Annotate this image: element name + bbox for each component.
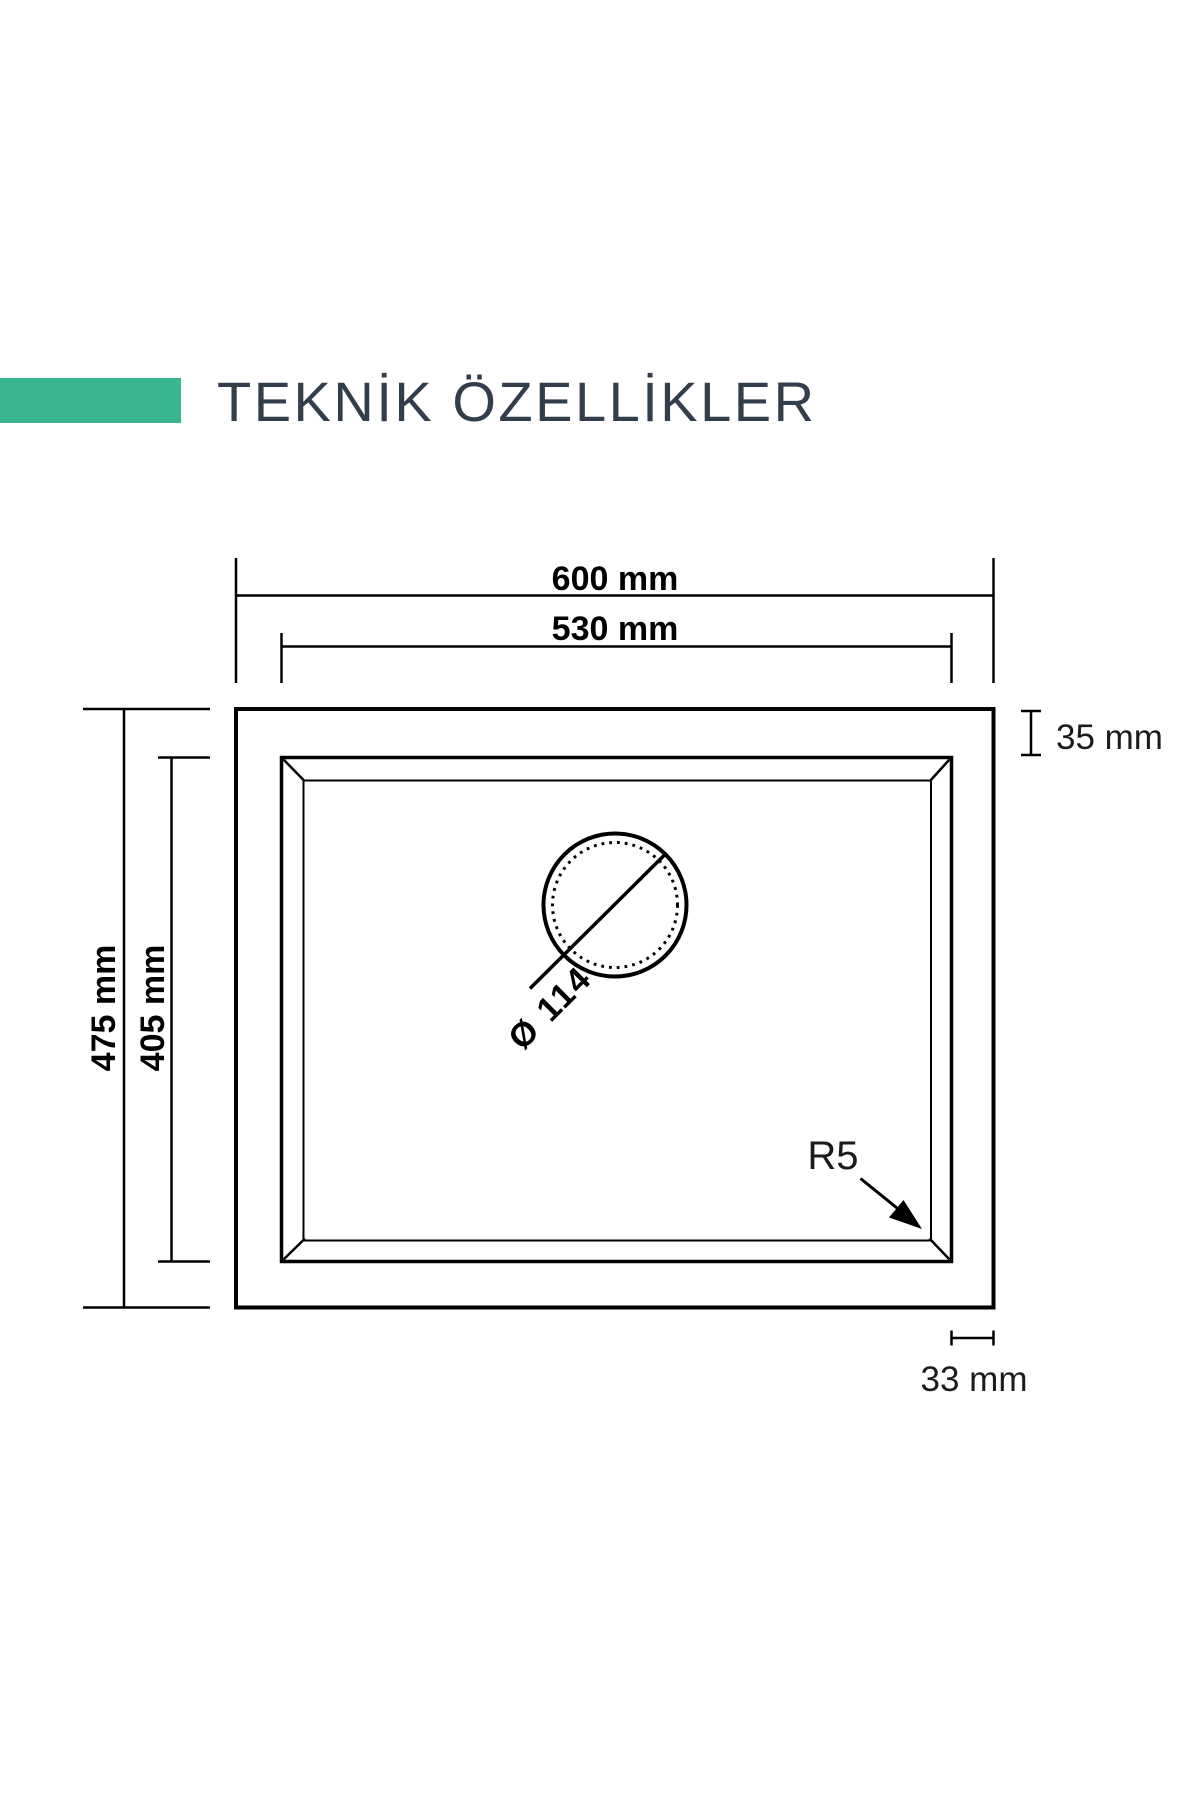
bowl-corner-chamfer [930, 760, 950, 782]
corner-radius-label: R5 [807, 1134, 858, 1178]
dim-label-rim-side: 33 mm [921, 1360, 1028, 1399]
drain-diameter-label: Ø 114 [501, 959, 599, 1057]
dim-label-inner-depth: 405 mm [134, 945, 172, 1072]
sink-plan-view [236, 709, 994, 1308]
dimension-inner-depth: 405 mm [134, 758, 210, 1262]
bowl-corner-chamfer [284, 760, 306, 782]
bowl-corner-chamfer [284, 1239, 306, 1260]
dim-label-rim-top: 35 mm [1056, 718, 1163, 757]
sink-outer-edge [236, 709, 994, 1308]
page: TEKNİK ÖZELLİKLER 600 mm 530 mm 475 mm [0, 0, 1200, 1800]
dimension-rim-side: 33 mm [921, 1331, 1028, 1400]
dim-label-inner-width: 530 mm [552, 610, 679, 648]
dimension-rim-top: 35 mm [1021, 711, 1163, 757]
bowl-corner-chamfer [930, 1239, 950, 1260]
drain-hole: Ø 114 [501, 834, 686, 1058]
corner-radius-arrow-line [861, 1179, 898, 1209]
dim-label-outer-width: 600 mm [552, 560, 679, 598]
technical-drawing: 600 mm 530 mm 475 mm 405 mm [0, 0, 1200, 1800]
dim-label-outer-depth: 475 mm [85, 945, 123, 1072]
dimension-inner-width: 530 mm [282, 610, 952, 683]
corner-radius-callout: R5 [807, 1134, 922, 1229]
